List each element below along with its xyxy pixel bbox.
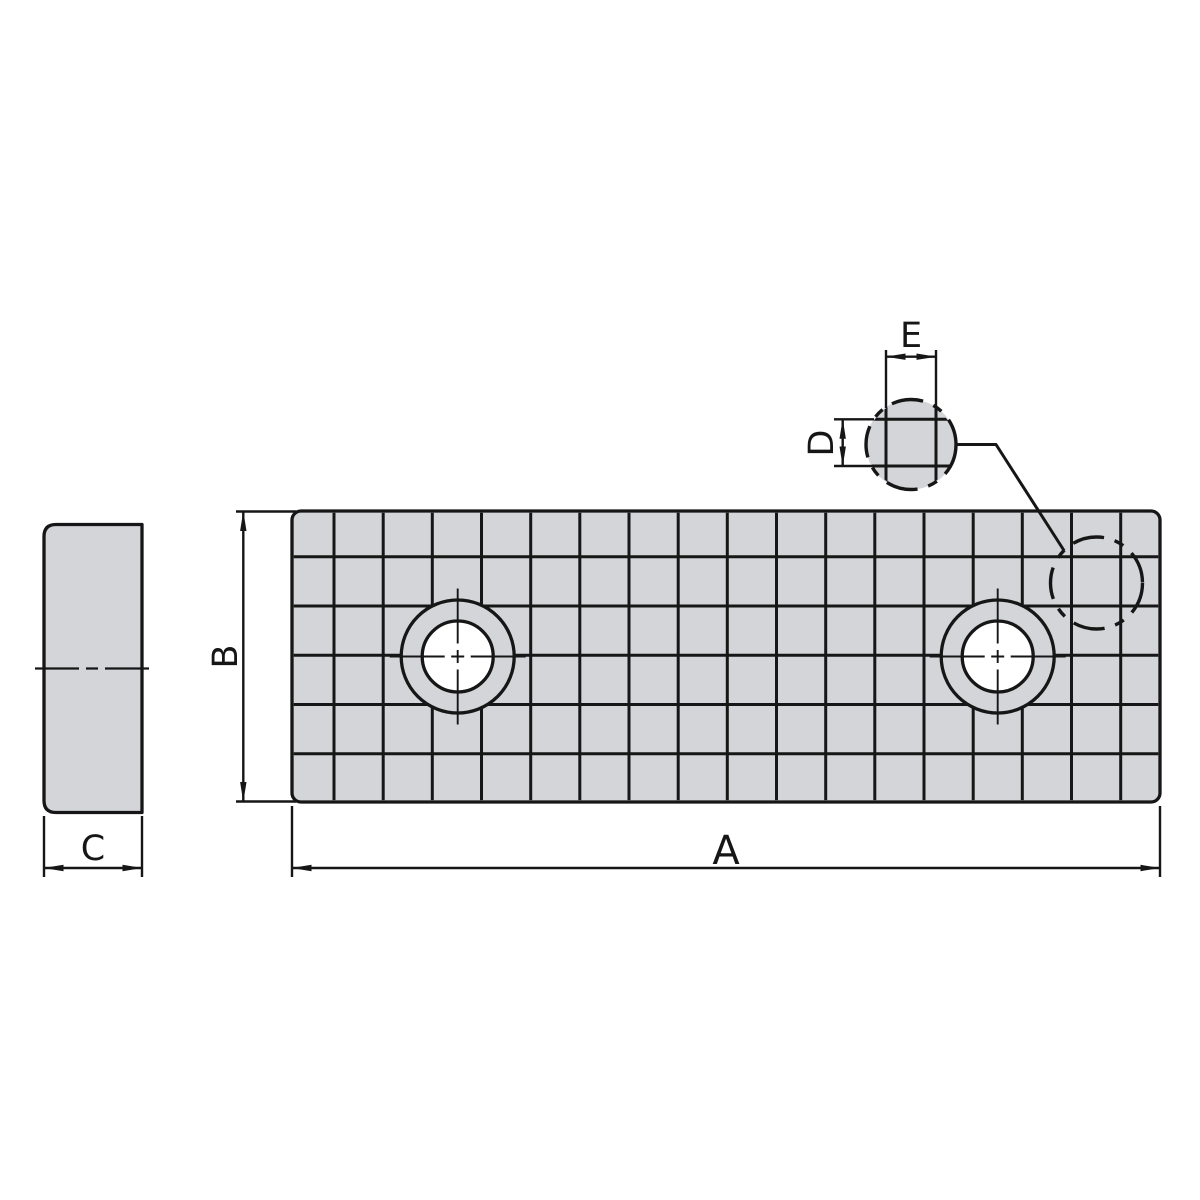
- dim-label-e: E: [900, 316, 922, 356]
- dim-label-d: D: [802, 430, 842, 457]
- detail-bubble: [866, 400, 956, 490]
- side-view: [35, 525, 151, 813]
- dim-label-a: A: [712, 828, 740, 874]
- dim-label-b: B: [206, 644, 246, 668]
- dimension-b: B: [206, 512, 296, 802]
- dim-label-c: C: [81, 829, 105, 869]
- drawing-canvas: E D B A C: [0, 0, 1200, 1200]
- dimension-c: C: [44, 816, 142, 877]
- front-view: [292, 511, 1160, 802]
- dimension-e: E: [886, 316, 936, 408]
- engineering-drawing: E D B A C: [0, 0, 1200, 1200]
- dimension-a: A: [292, 806, 1160, 877]
- dimension-d: D: [802, 419, 874, 466]
